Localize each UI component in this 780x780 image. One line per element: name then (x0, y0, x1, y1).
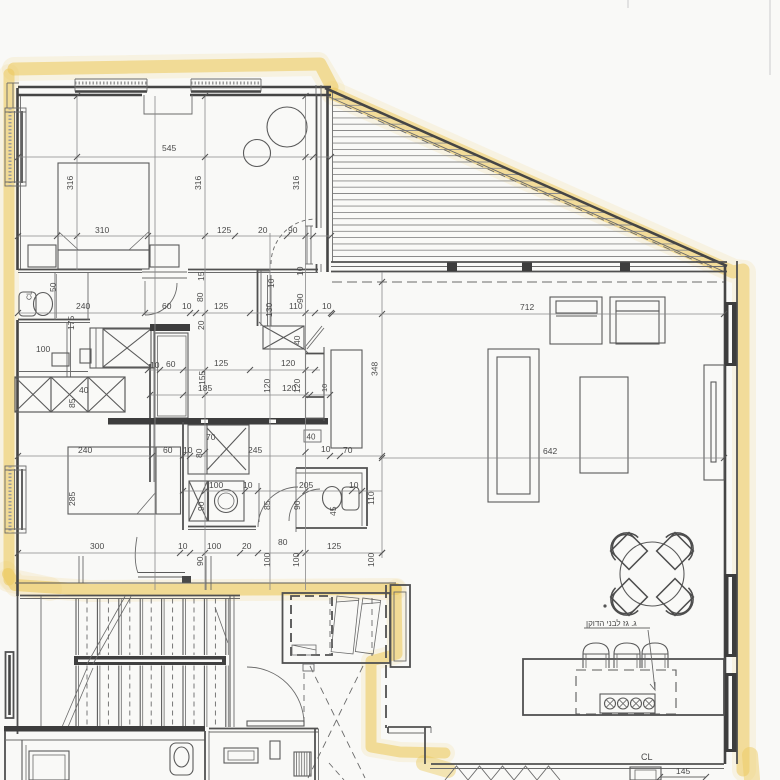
svg-text:CL: CL (641, 752, 653, 762)
svg-text:90: 90 (292, 500, 302, 510)
svg-text:205: 205 (299, 480, 313, 490)
svg-text:175: 175 (66, 316, 76, 330)
svg-text:348: 348 (370, 362, 380, 376)
svg-text:285: 285 (67, 492, 77, 506)
svg-text:10: 10 (178, 541, 188, 551)
svg-text:245: 245 (248, 445, 262, 455)
svg-text:310: 310 (95, 225, 109, 235)
svg-text:10: 10 (150, 360, 160, 370)
svg-text:70: 70 (206, 432, 216, 442)
svg-text:90: 90 (195, 556, 205, 566)
svg-text:60: 60 (162, 301, 172, 311)
svg-text:120: 120 (281, 358, 295, 368)
svg-text:125: 125 (214, 358, 228, 368)
svg-text:20: 20 (242, 541, 252, 551)
svg-text:100: 100 (366, 553, 376, 567)
svg-text:90: 90 (196, 501, 206, 511)
svg-text:20: 20 (258, 225, 268, 235)
svg-text:125: 125 (327, 541, 341, 551)
svg-text:712: 712 (520, 302, 534, 312)
svg-text:80: 80 (194, 448, 204, 458)
svg-text:300: 300 (90, 541, 104, 551)
svg-text:80: 80 (195, 292, 205, 302)
svg-text:316: 316 (193, 176, 203, 190)
svg-text:60: 60 (166, 359, 176, 369)
svg-text:45: 45 (328, 506, 338, 516)
svg-text:240: 240 (78, 445, 92, 455)
svg-text:120: 120 (282, 383, 296, 393)
svg-text:10: 10 (243, 480, 253, 490)
svg-text:185: 185 (198, 383, 212, 393)
svg-text:240: 240 (76, 301, 90, 311)
svg-text:100: 100 (209, 480, 223, 490)
svg-text:125: 125 (217, 225, 231, 235)
svg-text:85: 85 (262, 500, 272, 510)
svg-text:100: 100 (291, 553, 301, 567)
svg-text:120: 120 (262, 379, 272, 393)
svg-text:10: 10 (322, 301, 332, 311)
svg-text:145: 145 (676, 766, 690, 776)
svg-text:90: 90 (288, 225, 298, 235)
svg-text:10: 10 (321, 444, 331, 454)
svg-text:85: 85 (67, 398, 77, 408)
svg-text:316: 316 (291, 176, 301, 190)
svg-text:110: 110 (366, 491, 376, 505)
svg-text:125: 125 (214, 301, 228, 311)
svg-text:130: 130 (264, 303, 274, 317)
svg-text:40: 40 (307, 433, 316, 442)
svg-text:90: 90 (295, 293, 305, 303)
svg-text:545: 545 (162, 143, 176, 153)
svg-text:100: 100 (36, 344, 50, 354)
svg-text:10: 10 (349, 480, 359, 490)
svg-text:80: 80 (278, 537, 288, 547)
svg-text:10: 10 (266, 278, 276, 288)
svg-text:70: 70 (343, 445, 353, 455)
svg-text:100: 100 (207, 541, 221, 551)
svg-text:10: 10 (182, 301, 192, 311)
svg-text:40: 40 (292, 335, 302, 345)
svg-text:316: 316 (65, 176, 75, 190)
svg-text:10: 10 (295, 266, 305, 276)
svg-text:642: 642 (543, 446, 557, 456)
svg-text:60: 60 (163, 445, 173, 455)
svg-text:20: 20 (196, 320, 206, 330)
svg-text:CL: CL (27, 291, 34, 300)
svg-text:40: 40 (79, 385, 89, 395)
svg-text:100: 100 (262, 553, 272, 567)
svg-text:10: 10 (183, 445, 193, 455)
svg-text:10: 10 (320, 384, 329, 392)
svg-text:15: 15 (196, 271, 206, 281)
svg-text:ג. גז לבני הדוקן: ג. גז לבני הדוקן (586, 619, 637, 628)
